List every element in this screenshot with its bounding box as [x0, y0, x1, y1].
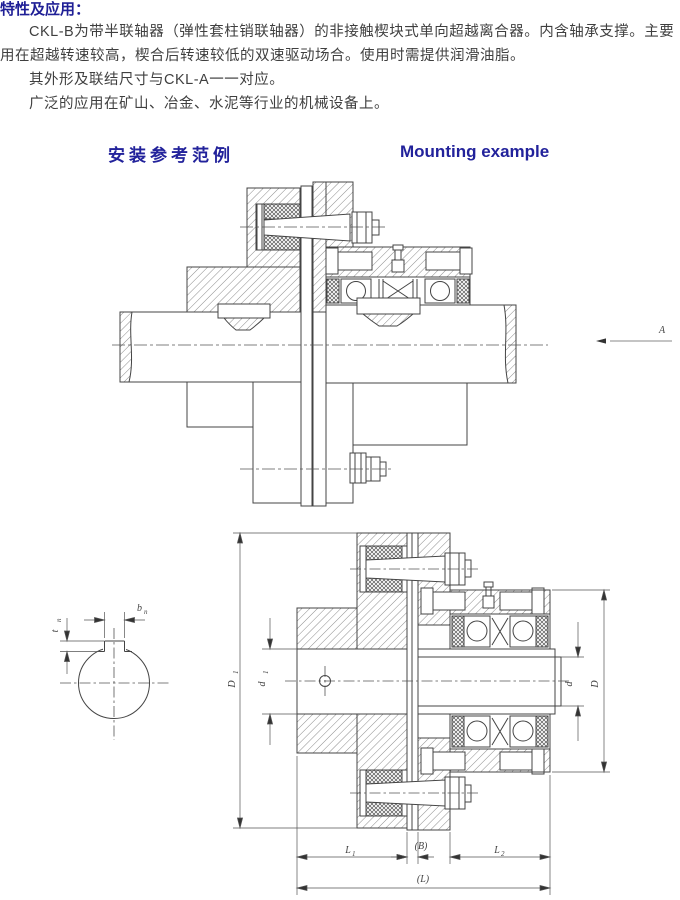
catalog-page: 特性及应用： CKL-B为带半联轴器（弹性套柱销联轴器）的非接触楔块式单向超越离…	[0, 0, 680, 900]
dim-label-L2: L	[493, 845, 500, 856]
dim-label-bn-sub: n	[144, 608, 148, 616]
dim-label-d1: d	[257, 681, 268, 687]
dim-label-bn: b	[137, 603, 142, 614]
view-label-A: A	[658, 325, 666, 336]
dim-label-D1-sub: 1	[232, 671, 240, 675]
section-title-en: Mounting example	[400, 142, 549, 162]
intro-paragraph-2: 其外形及联结尺寸与CKL-A一一对应。	[0, 68, 680, 92]
bearing-row-lower	[450, 714, 550, 749]
dimension-diagram: b n t n D 1 d 1 d D L 1 (B) L 2 (L)	[0, 528, 680, 900]
dim-label-L2-sub: 2	[501, 850, 505, 858]
intro-title: 特性及应用：	[0, 0, 680, 20]
dim-label-B: (B)	[415, 841, 428, 852]
shaft-left	[120, 312, 301, 382]
flange-bolt	[350, 453, 386, 483]
dim-label-L1-sub: 1	[352, 850, 356, 858]
shaft-right	[326, 305, 516, 383]
clutch-module	[326, 245, 472, 305]
dim-label-d1-sub: 1	[262, 671, 270, 675]
seal-right	[457, 279, 469, 303]
dim-label-D: D	[590, 680, 601, 689]
arrowhead	[596, 338, 606, 343]
dim-label-L1: L	[344, 845, 351, 856]
seal-left	[327, 279, 339, 303]
intro-block: 特性及应用： CKL-B为带半联轴器（弹性套柱销联轴器）的非接触楔块式单向超越离…	[0, 0, 680, 116]
view-arrow-A: A	[596, 325, 672, 344]
section-cut-geometry	[120, 182, 516, 506]
dim-label-D1: D	[227, 680, 238, 689]
coupling-section	[79, 533, 562, 830]
pin-nut	[352, 212, 379, 243]
shaft-sleeve	[418, 649, 561, 714]
spring-upper	[264, 204, 300, 219]
dim-label-tn: t	[50, 629, 61, 632]
mounting-example-diagram: A	[0, 168, 680, 528]
bore	[297, 649, 407, 714]
bearing-row-upper	[450, 614, 550, 649]
intro-paragraph-1: CKL-B为带半联轴器（弹性套柱销联轴器）的非接触楔块式单向超越离合器。内含轴承…	[0, 20, 680, 68]
section-headings: 安装参考范例 Mounting example	[0, 141, 680, 165]
intro-paragraph-3: 广泛的应用在矿山、冶金、水泥等行业的机械设备上。	[0, 92, 680, 116]
dim-label-L: (L)	[417, 874, 430, 885]
dim-label-d: d	[564, 681, 575, 687]
dim-label-tn-sub: n	[55, 618, 63, 622]
section-title-zh: 安装参考范例	[108, 141, 234, 166]
